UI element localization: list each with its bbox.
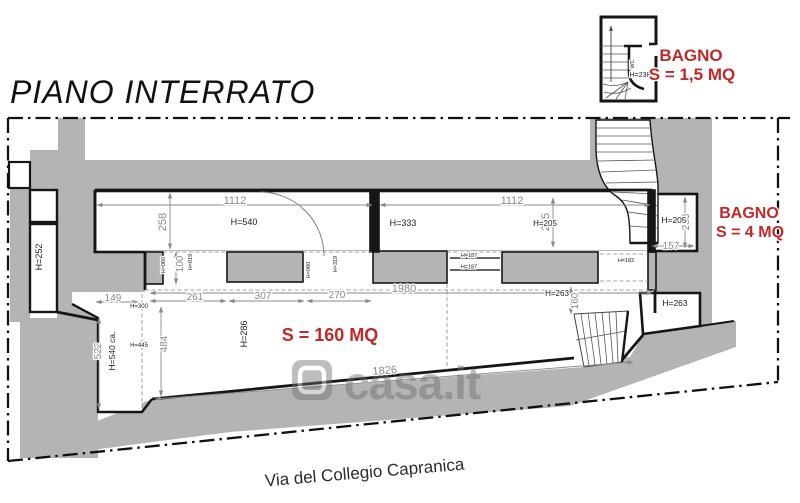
- dim-stair-depth: 160: [570, 292, 581, 309]
- dim-niche-depth: 100: [175, 255, 186, 272]
- page-title: PIANO INTERRATO: [10, 74, 315, 110]
- dim-small-room-width: 157: [663, 241, 680, 252]
- mini-wc-label: WC: [630, 59, 636, 68]
- label-h182: H=182: [618, 258, 634, 264]
- label-h540: H=540: [231, 217, 258, 227]
- bath-area-label: S = 4 MQ: [716, 224, 784, 241]
- label-h263-right: H=263: [662, 298, 688, 308]
- mini-plan: [601, 17, 658, 101]
- mini-height-label: H=238: [630, 72, 651, 79]
- floorplan-svg: casa.it PIANO INTERRATO Via del Collegio…: [0, 0, 800, 503]
- label-h333: H=333: [390, 218, 417, 228]
- floorplan-page: casa.it PIANO INTERRATO Via del Collegio…: [0, 0, 800, 503]
- dim-sub-3: 270: [329, 290, 346, 301]
- label-h187-b: H=187: [461, 265, 477, 271]
- street-name: Via del Collegio Capranica: [264, 455, 465, 491]
- label-h300: H=300: [130, 304, 149, 310]
- label-h205-right: H=205: [661, 215, 687, 225]
- room-left-a: [30, 190, 57, 222]
- mini-area-label: S = 1,5 MQ: [649, 65, 735, 84]
- label-h263-left: H=263: [545, 289, 569, 298]
- watermark-text: casa.it: [344, 357, 481, 409]
- label-h319: H=319: [333, 256, 339, 272]
- label-h252: H=252: [34, 244, 44, 271]
- dim-corridor-width: 149: [105, 293, 122, 304]
- dim-sub-2: 307: [255, 291, 272, 302]
- dim-hall-bottom: 1826: [372, 364, 397, 378]
- dim-corridor-length: 522: [93, 342, 104, 359]
- dim-top-left: 1112: [224, 195, 247, 207]
- label-h540ca: H=540 ca.: [107, 332, 117, 371]
- dim-left-depth: 258: [157, 213, 169, 231]
- bottom-stair: [574, 311, 628, 367]
- label-h060-b: H=060: [306, 262, 312, 278]
- label-h187-a: H=187: [461, 253, 477, 259]
- dim-sub-1: 261: [187, 292, 204, 303]
- dim-hall-depth: 484: [159, 335, 170, 352]
- dim-top-right: 1112: [501, 195, 524, 207]
- label-h445: H=445: [130, 343, 149, 349]
- mini-room-label: BAGNO: [659, 46, 722, 65]
- niche-left: [9, 162, 30, 188]
- main-area-label: S = 160 MQ: [282, 325, 379, 345]
- label-h205-center: H=205: [533, 219, 557, 228]
- label-h019: H=019: [188, 254, 194, 270]
- label-h060-a: H=060: [161, 257, 167, 273]
- dim-hall-total: 1980: [392, 283, 416, 295]
- label-h286: H=286: [239, 321, 249, 348]
- bath-room-label: BAGNO: [719, 205, 779, 222]
